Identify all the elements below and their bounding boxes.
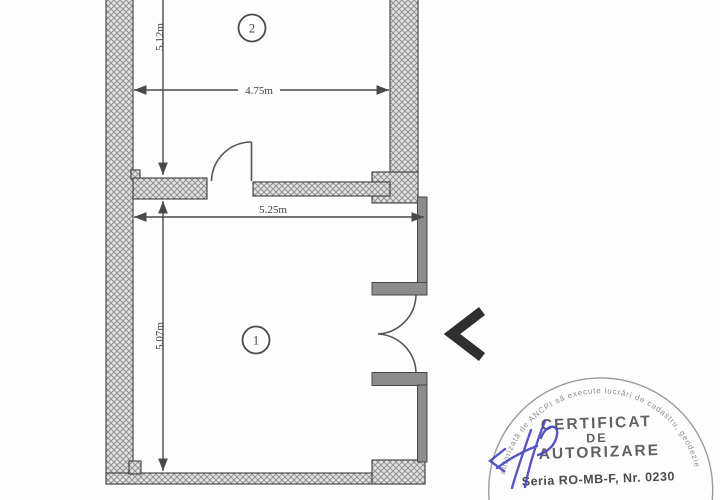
door-stub-top (372, 283, 427, 296)
room-1-number: 1 (253, 333, 260, 348)
wall-left (106, 0, 133, 484)
dim-label-525: 5.25m (259, 204, 287, 216)
wall-interior-left (133, 178, 207, 199)
dim-label-512: 5.12m (154, 23, 166, 51)
floor-plan-scan: 5.12m 4.75m 5.25m 5.07m 2 1 autorizată d… (0, 0, 720, 500)
wall-bottom-right-block (372, 460, 425, 484)
wall-right-upper (390, 0, 418, 173)
dim-label-475: 4.75m (245, 85, 273, 97)
dim-label-507: 5.07m (154, 322, 166, 350)
wall-thin-right-lower (418, 385, 428, 462)
wall-thin-right-upper (418, 197, 428, 283)
door-stub-bottom (372, 373, 427, 386)
wall-bottom-left-notch (129, 461, 141, 474)
wall-interior-right (253, 182, 390, 196)
room-2-number: 2 (249, 21, 256, 36)
